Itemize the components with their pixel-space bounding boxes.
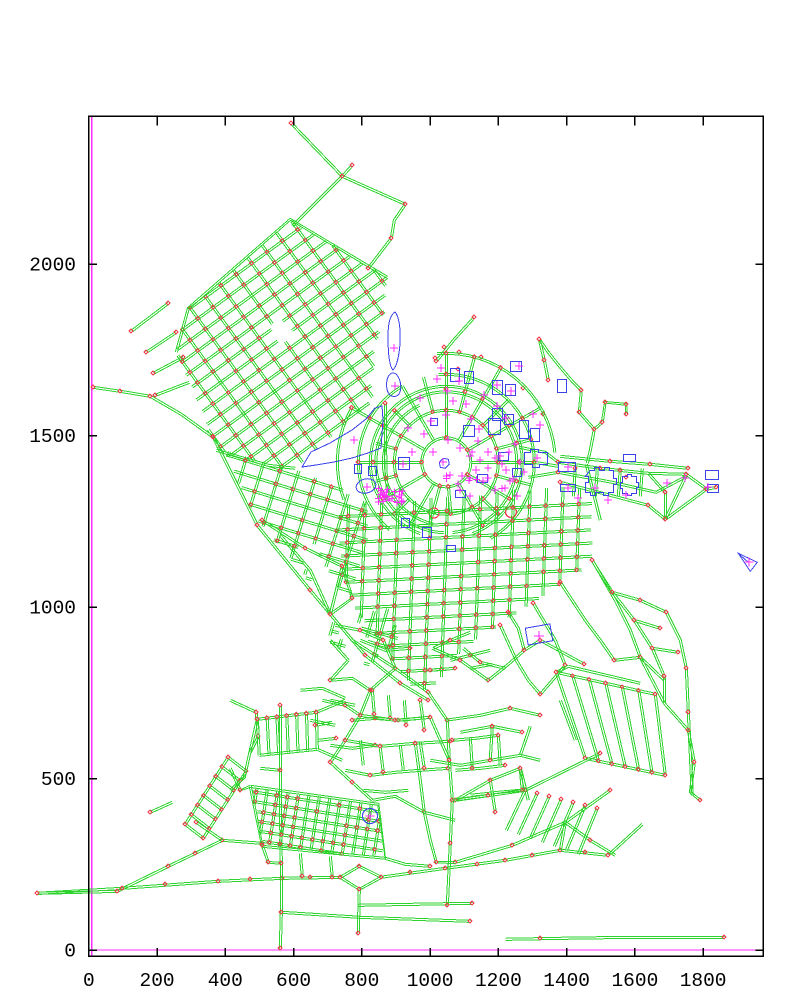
svg-text:0: 0 (64, 941, 76, 963)
svg-text:1800: 1800 (680, 970, 727, 992)
svg-text:0: 0 (83, 970, 95, 992)
svg-text:1200: 1200 (475, 970, 522, 992)
svg-text:200: 200 (140, 970, 175, 992)
svg-text:400: 400 (208, 970, 243, 992)
svg-text:1600: 1600 (611, 970, 658, 992)
svg-text:2000: 2000 (29, 255, 76, 277)
svg-text:1500: 1500 (29, 426, 76, 448)
svg-text:500: 500 (41, 769, 76, 791)
svg-text:800: 800 (344, 970, 379, 992)
svg-text:1000: 1000 (407, 970, 454, 992)
svg-text:1400: 1400 (543, 970, 590, 992)
svg-text:1000: 1000 (29, 598, 76, 620)
svg-text:600: 600 (276, 970, 311, 992)
